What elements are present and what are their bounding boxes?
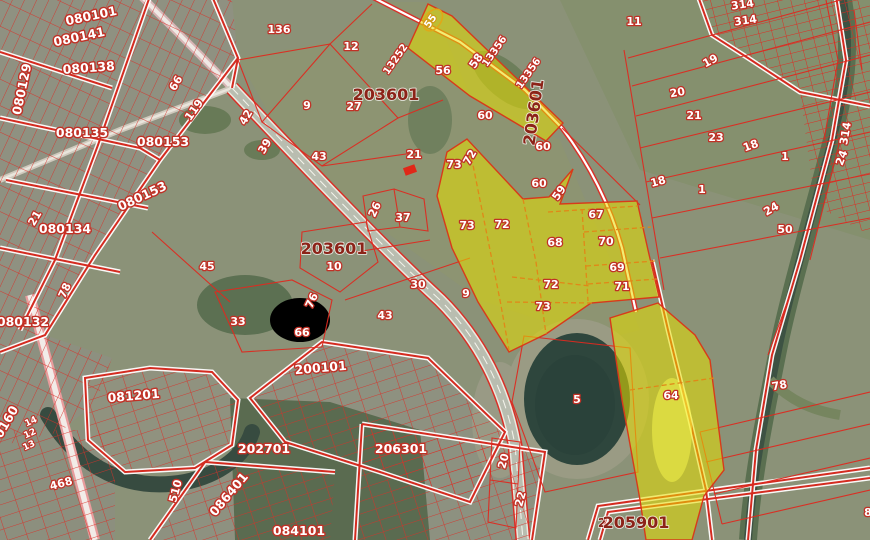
block-label: 203601 — [301, 239, 368, 258]
parcel-label: 12 — [343, 40, 358, 53]
quarter-label: 080132 — [0, 314, 49, 329]
parcel-label: 78 — [771, 378, 788, 393]
parcel-label: 9 — [303, 99, 311, 112]
parcel-label: 69 — [609, 261, 624, 274]
parcel-label: 1 — [698, 183, 706, 196]
parcel-label: 70 — [598, 235, 614, 248]
parcel-label: 21 — [406, 148, 421, 161]
quarter-label: 080134 — [39, 221, 91, 236]
parcel-label: 5 — [573, 393, 581, 406]
parcel-label: 64 — [663, 389, 679, 402]
parcel-label: 21 — [686, 109, 701, 122]
quarter-label: 080135 — [56, 125, 108, 140]
parcel-label: 73 — [446, 158, 461, 171]
parcel-label: 73 — [535, 300, 550, 313]
parcel-label: 136 — [268, 23, 291, 36]
parcel-label: 60 — [531, 177, 547, 190]
cadastral-map-viewport[interactable]: 080101 080141 080138 080129 080135 08015… — [0, 0, 870, 540]
parcel-label: 45 — [199, 260, 214, 273]
parcel-label: 50 — [777, 223, 793, 236]
parcel-label: 56 — [435, 64, 451, 77]
parcel-label: 43 — [311, 150, 326, 163]
parcel-label: 72 — [543, 278, 558, 291]
parcel-label: 8 — [864, 506, 870, 519]
parcel-label: 66 — [294, 326, 310, 339]
parcel-label: 20 — [669, 85, 687, 101]
parcel-label: 9 — [462, 287, 470, 300]
parcel-label: 30 — [410, 278, 426, 291]
quarter-label: 080153 — [137, 134, 189, 149]
block-label: 205901 — [603, 513, 670, 532]
parcel-label: 67 — [588, 208, 603, 221]
parcel-label: 43 — [377, 309, 392, 322]
parcel-label: 71 — [614, 280, 629, 293]
parcel-label: 60 — [535, 140, 551, 153]
parcel-label: 37 — [395, 211, 410, 224]
quarter-label: 206301 — [375, 441, 427, 456]
parcel-label: 1 — [781, 150, 789, 163]
parcel-label: 10 — [326, 260, 342, 273]
parcel-label: 73 — [459, 219, 474, 232]
quarter-label: 084101 — [273, 523, 325, 538]
parcel-label: 72 — [494, 218, 509, 231]
cadastral-map[interactable]: 080101 080141 080138 080129 080135 08015… — [0, 0, 870, 540]
quarter-label: 202701 — [238, 441, 290, 456]
parcel-label: 23 — [708, 131, 723, 144]
parcel-label: 11 — [626, 15, 641, 28]
parcel-label: 60 — [477, 109, 493, 122]
parcel-label: 68 — [547, 236, 562, 249]
parcel-label: 33 — [230, 315, 245, 328]
block-label: 203601 — [353, 85, 420, 104]
